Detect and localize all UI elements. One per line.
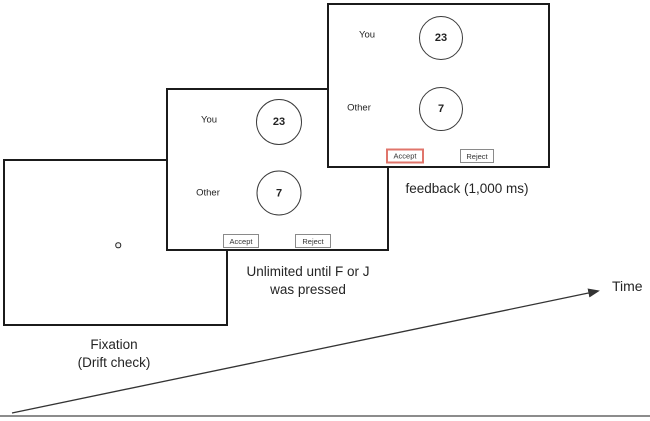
reject-button[interactable]: Reject — [460, 149, 494, 163]
fixation-caption-line1: Fixation — [78, 336, 151, 354]
you-amount-value: 23 — [273, 116, 285, 128]
accept-button[interactable]: Accept — [223, 234, 259, 248]
baseline-rule — [0, 415, 650, 417]
fixation-dot — [115, 242, 121, 248]
you-amount-circle: 23 — [419, 16, 463, 60]
fixation-caption-line2: (Drift check) — [78, 354, 151, 372]
other-amount-value: 7 — [438, 103, 444, 115]
you-label: You — [359, 30, 375, 41]
choice-caption: Unlimited until F or J was pressed — [246, 263, 369, 299]
feedback-caption: feedback (1,000 ms) — [405, 180, 528, 198]
other-label: Other — [347, 103, 371, 114]
other-amount-circle: 7 — [257, 171, 302, 216]
other-amount-value: 7 — [276, 187, 282, 199]
feedback-screen-panel: You 23 Other 7 Accept Reject — [327, 3, 550, 168]
you-amount-value: 23 — [435, 32, 447, 44]
time-axis-label: Time — [612, 278, 643, 294]
trial-sequence-figure: You 23 Other 7 Accept Reject You 23 Othe… — [0, 0, 650, 421]
choice-caption-line1: Unlimited until F or J — [246, 263, 369, 281]
accept-button-selected[interactable]: Accept — [386, 149, 424, 164]
other-label: Other — [196, 188, 220, 199]
you-amount-circle: 23 — [256, 99, 302, 145]
choice-caption-line2: was pressed — [246, 281, 369, 299]
other-amount-circle: 7 — [419, 87, 463, 131]
fixation-caption: Fixation (Drift check) — [78, 336, 151, 372]
you-label: You — [201, 115, 217, 126]
reject-button[interactable]: Reject — [295, 234, 331, 248]
